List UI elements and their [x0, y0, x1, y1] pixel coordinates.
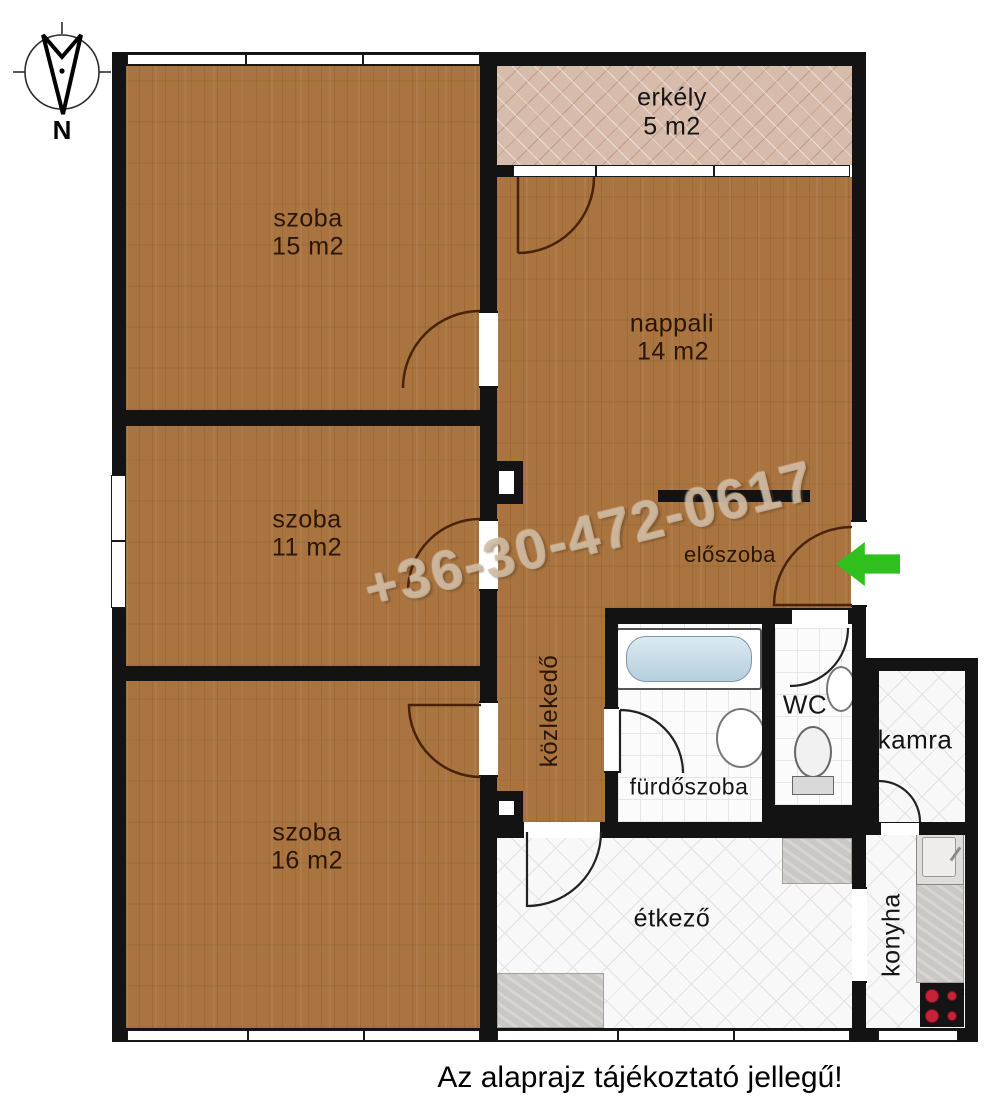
room-label-szoba11: szoba: [272, 506, 341, 535]
room-label-etkezo: étkező: [634, 905, 711, 934]
caption: Az alaprajz tájékoztató jellegű!: [437, 1061, 842, 1095]
door-arc-balcony: [518, 177, 594, 253]
door-arc-wc: [790, 628, 848, 686]
compass: N: [4, 8, 120, 144]
area-label-erkely: 5 m2: [643, 113, 701, 142]
room-label-nappali: nappali: [630, 310, 714, 339]
area-label-szoba16: 16 m2: [271, 847, 343, 876]
room-label-szoba16: szoba: [272, 819, 341, 848]
door-arc-furdoszoba: [620, 710, 683, 773]
area-label-szoba11: 11 m2: [272, 534, 342, 563]
door-arc-szoba11: [408, 519, 480, 591]
room-label-kamra: kamra: [878, 725, 953, 756]
room-label-furdoszoba: fürdőszoba: [630, 774, 749, 801]
room-label-wc: WC: [783, 690, 827, 721]
room-label-erkely: erkély: [637, 84, 707, 113]
door-arc-kamra: [879, 781, 920, 822]
compass-center-dot: [59, 68, 64, 73]
door-arc-szoba16: [409, 705, 481, 777]
north-arrow: [43, 35, 81, 114]
compass-label: N: [53, 115, 72, 144]
door-arc-etkezo: [527, 832, 601, 906]
area-label-szoba15: 15 m2: [272, 233, 344, 262]
room-label-szoba15: szoba: [273, 205, 342, 234]
floor-plan: szoba 15 m2 szoba 11 m2 szoba 16 m2 napp…: [0, 0, 1000, 1119]
door-arc-szoba15: [403, 311, 480, 388]
room-label-konyha: konyha: [878, 893, 907, 977]
room-label-kozlekedo: közlekedő: [536, 655, 564, 768]
room-label-eloszoba: előszoba: [684, 542, 776, 568]
area-label-nappali: 14 m2: [637, 338, 709, 367]
